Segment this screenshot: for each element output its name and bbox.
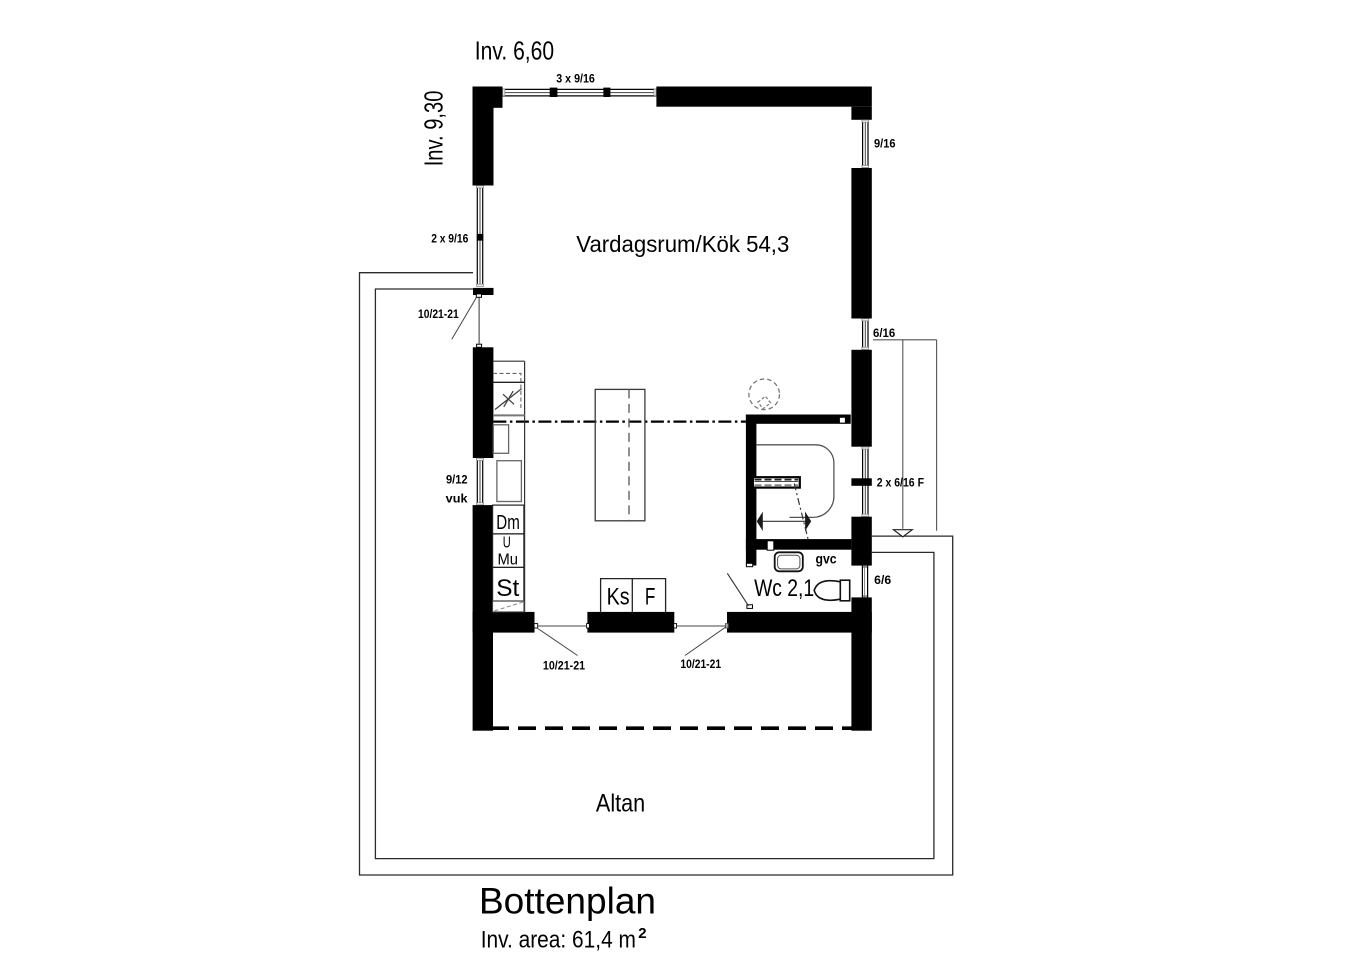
svg-text:Vardagsrum/Kök 54,3: Vardagsrum/Kök 54,3 [576, 231, 789, 257]
svg-text:gvc: gvc [816, 551, 838, 566]
svg-text:2 x 9/16: 2 x 9/16 [431, 231, 468, 245]
svg-text:2: 2 [638, 925, 646, 942]
svg-text:Mu: Mu [498, 552, 519, 569]
svg-text:Inv. area: 61,4 m: Inv. area: 61,4 m [481, 926, 636, 953]
svg-text:Ks: Ks [607, 584, 630, 611]
svg-text:Wc 2,1: Wc 2,1 [754, 575, 814, 602]
svg-text:Inv. 6,60: Inv. 6,60 [475, 36, 554, 66]
svg-text:Altan: Altan [596, 790, 645, 818]
svg-text:F: F [645, 584, 656, 611]
svg-text:10/21-21: 10/21-21 [418, 309, 459, 321]
svg-text:6/6: 6/6 [874, 573, 891, 587]
svg-text:2 x 6/16 F: 2 x 6/16 F [877, 475, 924, 489]
svg-text:St: St [496, 575, 519, 602]
svg-text:vuk: vuk [446, 492, 468, 506]
svg-text:10/21-21: 10/21-21 [543, 660, 586, 672]
svg-text:10/21-21: 10/21-21 [680, 659, 721, 671]
svg-text:Bottenplan: Bottenplan [479, 881, 656, 922]
svg-text:Dm: Dm [496, 512, 520, 534]
svg-text:9/12: 9/12 [446, 473, 468, 487]
svg-text:9/16: 9/16 [874, 136, 896, 150]
svg-text:3 x 9/16: 3 x 9/16 [556, 72, 595, 86]
svg-text:Inv. 9,30: Inv. 9,30 [419, 91, 449, 167]
svg-text:6/16: 6/16 [873, 326, 896, 340]
svg-text:U: U [503, 535, 511, 552]
